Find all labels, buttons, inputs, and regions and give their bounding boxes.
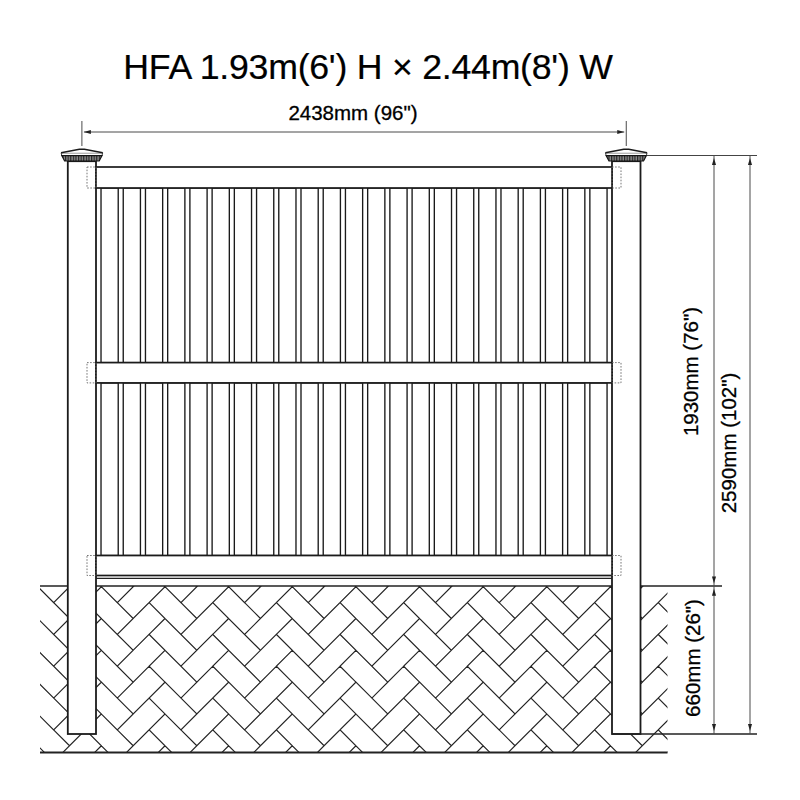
svg-text:2590mm (102"): 2590mm (102") [717,373,740,514]
svg-text:1930mm (76"): 1930mm (76") [679,307,702,436]
svg-text:660mm (26"): 660mm (26") [681,599,704,717]
svg-text:HFA 1.93m(6') H × 2.44m(8') W: HFA 1.93m(6') H × 2.44m(8') W [123,47,613,87]
svg-text:2438mm (96"): 2438mm (96") [288,101,417,124]
